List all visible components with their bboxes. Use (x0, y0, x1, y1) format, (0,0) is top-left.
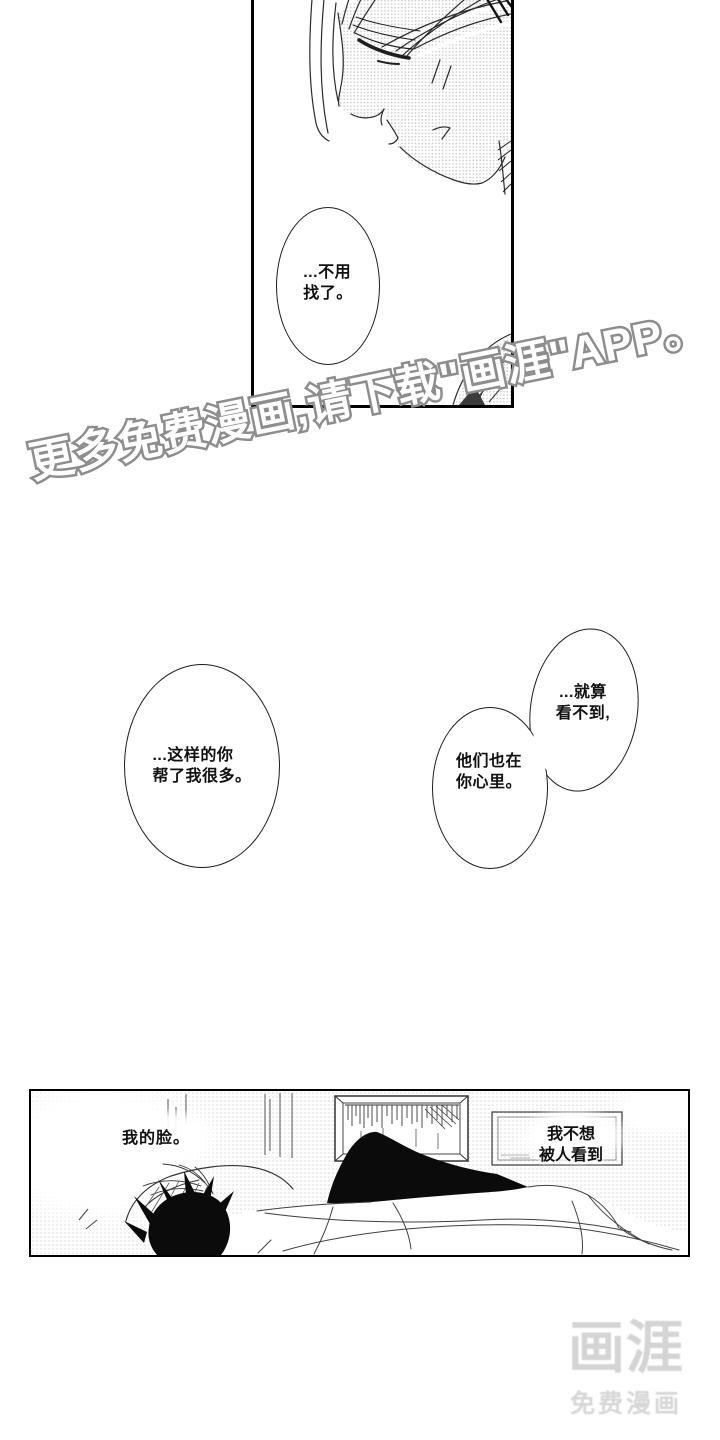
caption-dont-want-seen: 我不想 被人看到 (525, 1125, 617, 1167)
head-halftone (337, 0, 511, 183)
bottom-panel (29, 1089, 690, 1257)
manga-page: ...不用 找了。 更多免费漫画,请下载"画涯"APP。 更多免费漫画,请下载"… (0, 0, 720, 1440)
speech-bubble-right-bottom-text: 他们也在 你心里。 (432, 751, 546, 793)
speech-bubble-top: ...不用 找了。 (276, 207, 380, 365)
speech-bubble-top-text: ...不用 找了。 (303, 262, 353, 310)
caption-my-face: 我的脸。 (122, 1124, 212, 1148)
speech-bubble-left: ...这样的你 帮了我很多。 (124, 664, 280, 868)
bedroom-illustration (31, 1091, 688, 1255)
logo-wordmark: 画涯 (560, 1320, 692, 1377)
speech-bubble-left-text: ...这样的你 帮了我很多。 (152, 745, 251, 787)
logo-tagline: 免费漫画 (553, 1384, 699, 1420)
top-panel (251, 0, 514, 408)
shoulder (453, 334, 511, 405)
speech-bubble-right-top-text: ...就算 看不到, (530, 682, 636, 724)
